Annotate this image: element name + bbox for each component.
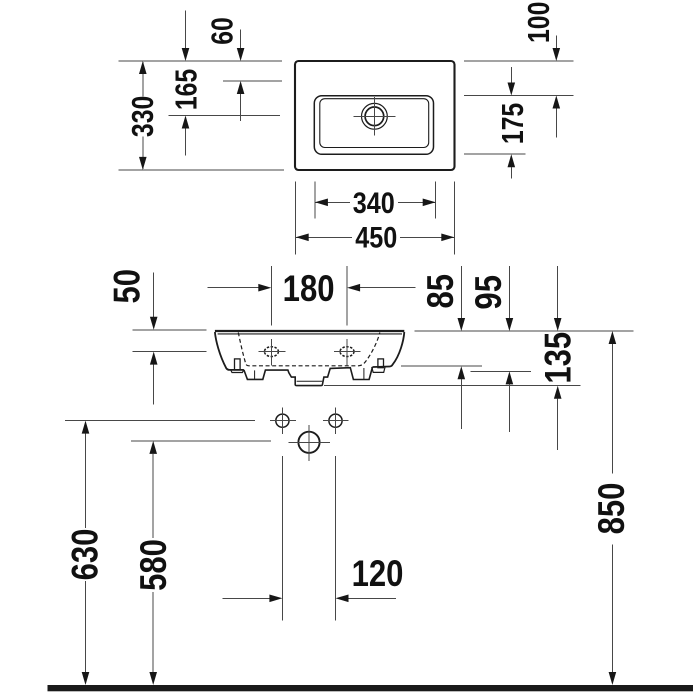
svg-text:95: 95 [469, 275, 510, 310]
svg-text:180: 180 [283, 269, 335, 310]
svg-text:175: 175 [495, 103, 529, 144]
svg-text:630: 630 [65, 529, 106, 581]
svg-text:330: 330 [125, 96, 159, 137]
svg-text:850: 850 [592, 483, 633, 535]
svg-text:85: 85 [421, 274, 462, 309]
svg-text:580: 580 [134, 539, 175, 591]
svg-text:50: 50 [107, 269, 148, 304]
svg-text:100: 100 [521, 2, 555, 43]
svg-text:135: 135 [538, 332, 579, 384]
svg-text:165: 165 [169, 69, 203, 110]
svg-text:120: 120 [352, 553, 404, 594]
svg-text:450: 450 [355, 220, 397, 254]
svg-text:60: 60 [205, 17, 239, 45]
svg-text:340: 340 [353, 186, 395, 220]
